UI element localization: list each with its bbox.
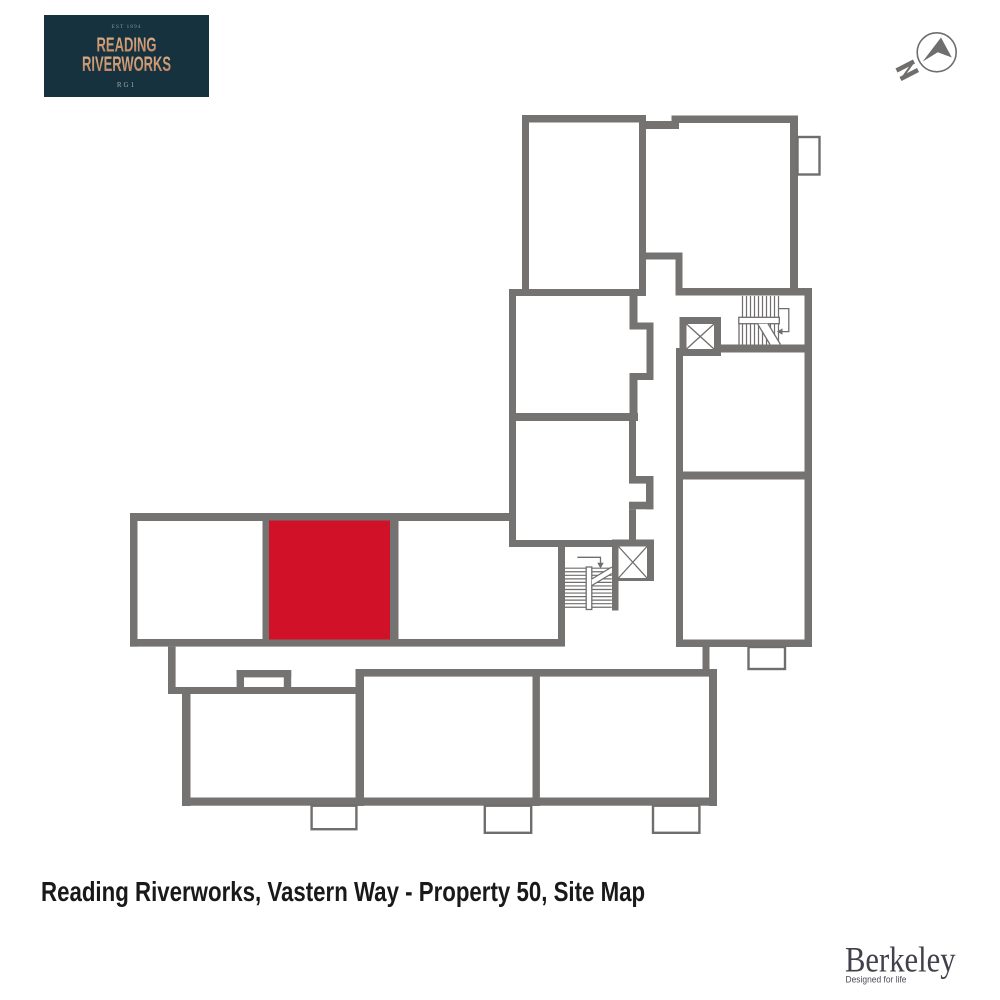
svg-text:Berkeley: Berkeley — [845, 940, 956, 980]
svg-text:Designed for life: Designed for life — [846, 975, 907, 986]
